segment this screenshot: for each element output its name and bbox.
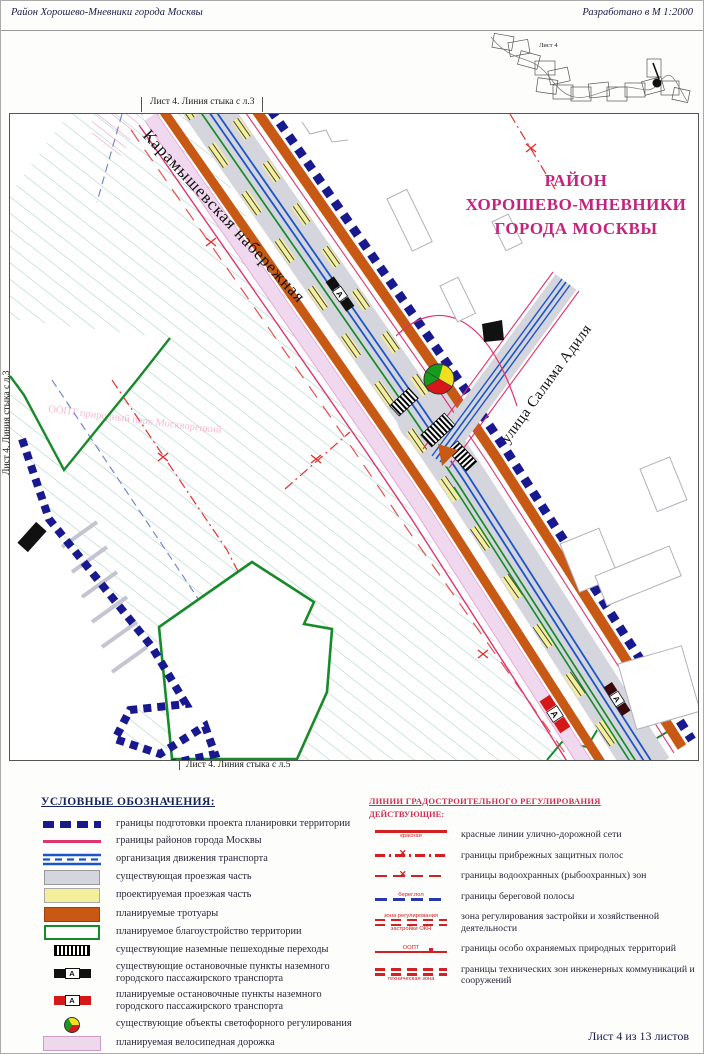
water-protection-swatch: ✕ <box>369 875 453 878</box>
legend-item-traffic-org: организация движения транспорта <box>41 852 371 866</box>
index-map-sheet-label: Лист 4 <box>539 42 558 49</box>
document-title: Район Хорошево-Мневники города Москвы <box>11 7 203 18</box>
traffic-light-swatch <box>41 1017 103 1033</box>
map-title-line2: ХОРОШЕВО-МНЕВНИКИ <box>456 193 696 217</box>
sidewalks-swatch <box>41 907 103 922</box>
reg-item-oopt: ООПТ границы особо охраняемых природных … <box>369 943 703 955</box>
scale-note: Разработано в М 1:2000 <box>582 7 693 18</box>
crosswalks-swatch <box>41 945 103 956</box>
existing-roadway-swatch <box>41 870 103 885</box>
plan-sheet: Район Хорошево-Мневники города Москвы Ра… <box>0 0 704 1054</box>
bike-path-swatch <box>41 1036 103 1051</box>
legend-item-district: границы районов города Москвы <box>41 835 371 849</box>
traffic-org-swatch <box>41 853 103 866</box>
black-structure <box>482 320 504 342</box>
reg-item-red-lines: красная красные линии улично-дорожной се… <box>369 829 703 841</box>
existing-stops-swatch: А <box>41 968 103 979</box>
map-title-line3: ГОРОДА МОСКВЫ <box>456 217 696 241</box>
regulation-subtitle: ДЕЙСТВУЮЩИЕ: <box>369 809 703 819</box>
map-title: РАЙОН ХОРОШЕВО-МНЕВНИКИ ГОРОДА МОСКВЫ <box>456 169 696 240</box>
technical-zones-swatch: техническая зона <box>369 968 453 982</box>
legend-item-bike-path: планируемая велосипедная дорожка <box>41 1036 371 1051</box>
legend-item-sidewalks: планируемые тротуары <box>41 907 371 922</box>
coastal-protection-swatch: ✕ <box>369 854 453 857</box>
legend-item-planned-stops: А планируемые остановочные пункты наземн… <box>41 989 371 1013</box>
edge-label-top: Лист 4. Линия стыка с л.3 <box>141 97 263 112</box>
legend-item-landscaping: планируемое благоустройство территории <box>41 925 371 940</box>
legend-item-crosswalks: существующие наземные пешеходные переход… <box>41 944 371 958</box>
boundary-swatch <box>41 821 103 828</box>
legend-item-planned-roadway: проектируемая проезжая часть <box>41 888 371 903</box>
reg-item-development-zone: зона регулирования застройки ОКН зона ре… <box>369 911 703 934</box>
sheet-index-map: Лист 4 <box>487 33 697 105</box>
district-line-swatch <box>41 840 103 843</box>
legend-title: УСЛОВНЫЕ ОБОЗНАЧЕНИЯ: <box>41 796 371 808</box>
development-zone-swatch: зона регулирования застройки ОКН <box>369 913 453 933</box>
oopt-swatch: ООПТ <box>369 945 453 954</box>
legend-item-boundary: границы подготовки проекта планировки те… <box>41 817 371 831</box>
red-lines-swatch: красная <box>369 830 453 839</box>
reg-item-shoreline: берег.пол границы береговой полосы <box>369 891 703 903</box>
legend: УСЛОВНЫЕ ОБОЗНАЧЕНИЯ: границы подготовки… <box>41 796 371 1054</box>
planned-roadway-swatch <box>41 888 103 903</box>
landscaping-swatch <box>41 925 103 940</box>
header-divider <box>1 30 704 31</box>
index-map-marker <box>653 79 662 88</box>
legend-item-existing-stops: А существующие остановочные пункты назем… <box>41 961 371 985</box>
legend-item-existing-roadway: существующая проезжая часть <box>41 870 371 885</box>
legend-item-traffic-lights: существующие объекты светофорного регули… <box>41 1017 371 1033</box>
reg-item-technical-zones: техническая зона границы технических зон… <box>369 964 703 987</box>
sheet-number: Лист 4 из 13 листов <box>588 1029 689 1044</box>
reg-item-coastal-protection: ✕ границы прибрежных защитных полос <box>369 850 703 862</box>
shoreline-swatch: берег.пол <box>369 892 453 901</box>
regulation-title: ЛИНИИ ГРАДОСТРОИТЕЛЬНОГО РЕГУЛИРОВАНИЯ <box>369 796 703 806</box>
map-title-line1: РАЙОН <box>456 169 696 193</box>
regulation-legend: ЛИНИИ ГРАДОСТРОИТЕЛЬНОГО РЕГУЛИРОВАНИЯ Д… <box>369 796 703 996</box>
reg-item-water-protection: ✕ границы водоохранных (рыбоохранных) зо… <box>369 870 703 882</box>
planned-stops-swatch: А <box>41 995 103 1006</box>
traffic-light-icon <box>424 364 454 394</box>
